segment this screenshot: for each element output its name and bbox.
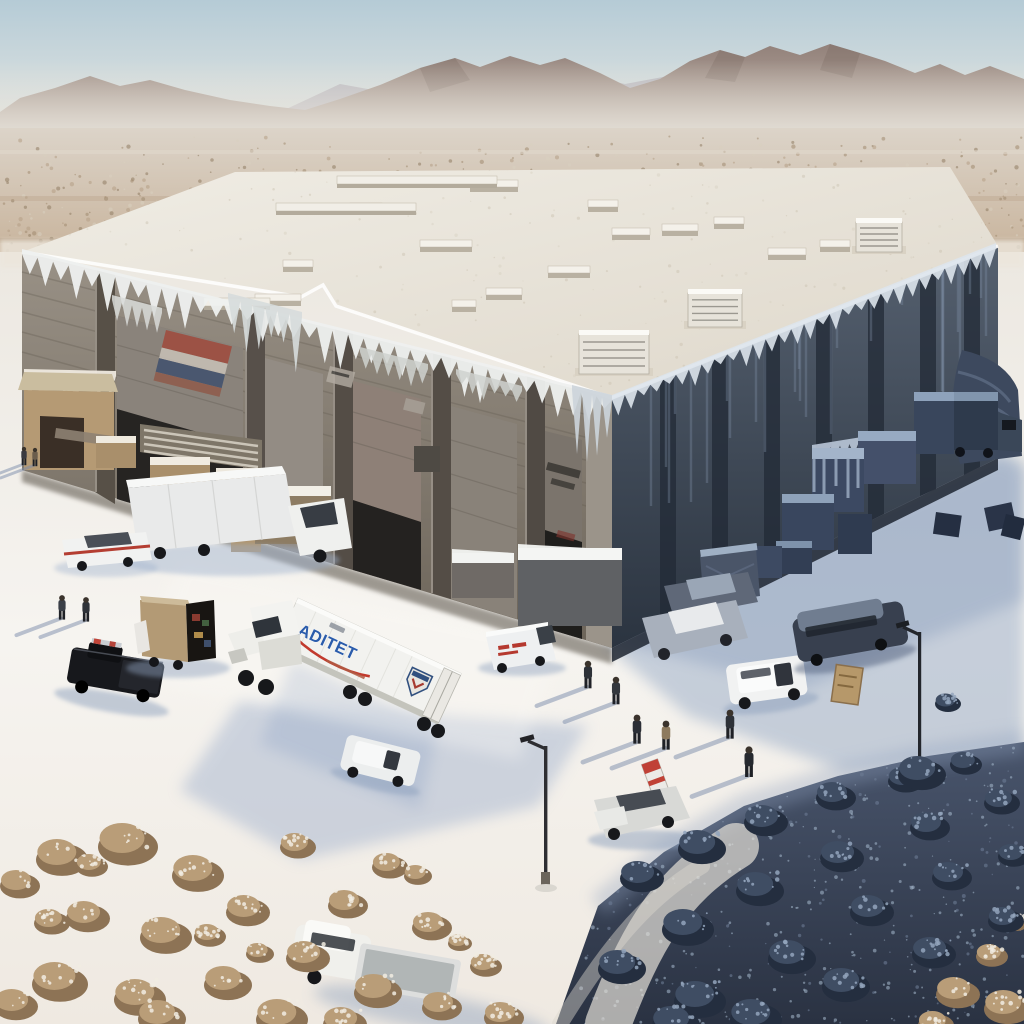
scrub-dot <box>702 165 704 167</box>
scrub-dot <box>788 163 790 165</box>
frost-dot <box>787 860 789 862</box>
roof-grain-dot <box>224 278 225 279</box>
roof-grain-dot <box>550 356 552 358</box>
scrub-dot <box>1015 145 1019 149</box>
frost-dot <box>820 938 822 940</box>
scrub-dot <box>942 159 946 163</box>
roof-grain-dot <box>805 284 808 287</box>
frost-dot <box>587 955 589 957</box>
frost-dot <box>962 894 966 898</box>
roof-grain-dot <box>981 222 982 223</box>
scrub-dot <box>759 143 762 146</box>
frost-dot <box>891 1018 893 1020</box>
roof-skylight-face <box>276 211 416 215</box>
hvac-unit <box>688 293 742 327</box>
frost-dot <box>762 858 764 860</box>
frost-dot <box>822 898 825 901</box>
hvac-unit <box>856 222 902 252</box>
person-leg <box>633 732 636 744</box>
frost-dot <box>607 927 610 930</box>
frost-dot <box>907 956 909 958</box>
frost-dot <box>971 813 973 815</box>
scrub-dot <box>239 147 241 149</box>
scrub-dot <box>147 157 149 159</box>
scrub-dot <box>757 137 759 139</box>
roof-grain-dot <box>910 256 912 258</box>
frost-dot <box>1012 826 1014 828</box>
scrub-dot <box>74 174 75 175</box>
frost-dot <box>970 945 974 949</box>
frost-dot <box>613 911 615 913</box>
scrub-dot <box>145 172 148 175</box>
frost-dot <box>853 954 856 957</box>
scrub-dot <box>1016 194 1018 196</box>
scrub-dot <box>128 204 132 208</box>
frost-dot <box>859 793 862 796</box>
frost-dot <box>820 891 824 895</box>
frost-dot <box>973 892 975 894</box>
scene-canvas: Frozen warehouse in a desert <box>0 0 1024 1024</box>
roof-grain-dot <box>498 265 501 268</box>
roof-grain-dot <box>654 298 656 300</box>
scrub-dot <box>56 186 60 190</box>
scrub-dot <box>89 212 91 214</box>
roof-grain-dot <box>772 236 774 238</box>
frost-dot <box>855 784 856 785</box>
frost-dot <box>819 981 823 985</box>
roof-grain-dot <box>705 212 707 214</box>
scrub-dot <box>188 157 190 159</box>
roof-grain-dot <box>952 219 953 220</box>
roof-vent <box>662 224 698 231</box>
frost-dot <box>797 907 799 909</box>
frosted-bush <box>984 788 1020 814</box>
scrub-dot <box>430 164 433 167</box>
scrub-dot <box>150 191 153 194</box>
scrub-dot <box>986 208 989 211</box>
frost-dot <box>725 885 728 888</box>
scrub-dot <box>990 172 993 175</box>
roof-grain-dot <box>407 215 409 217</box>
roof-vent <box>820 240 850 247</box>
roof-vent <box>283 260 313 267</box>
frost-dot <box>851 815 854 818</box>
frost-dot <box>591 925 595 929</box>
roof-grain-dot <box>606 270 608 272</box>
frost-dot <box>597 928 599 930</box>
roof-grain-dot <box>466 269 468 271</box>
frost-dot <box>957 1017 959 1019</box>
frosted-bush <box>34 908 70 935</box>
frost-dot <box>780 931 783 934</box>
roof-grain-dot <box>503 196 506 199</box>
frost-dot <box>904 847 906 849</box>
scrub-dot <box>143 154 145 156</box>
roof-grain-dot <box>288 252 291 255</box>
frost-dot <box>934 913 935 914</box>
scrub-dot <box>994 169 997 172</box>
scrub-dot <box>783 156 785 158</box>
roof-grain-dot <box>691 238 693 240</box>
frost-dot <box>913 970 916 973</box>
frost-dot <box>948 841 949 842</box>
frost-dot <box>814 859 815 860</box>
person-head <box>585 661 591 667</box>
scrub-dot <box>719 145 722 148</box>
roof-vent-face <box>820 247 850 252</box>
scrub-dot <box>1016 183 1020 187</box>
frost-dot <box>849 906 852 909</box>
scrub-dot <box>262 168 264 170</box>
roof-grain-dot <box>239 238 241 240</box>
person-body <box>82 602 89 613</box>
frost-dot <box>779 854 782 857</box>
frost-dot <box>905 935 908 938</box>
frost-dot <box>801 924 804 927</box>
scrub-dot <box>310 144 312 146</box>
roof-grain-dot <box>744 272 747 275</box>
frost-dot <box>869 856 873 860</box>
frost-dot <box>1014 841 1018 845</box>
scrub-dot <box>138 192 141 195</box>
wall-column <box>764 332 780 573</box>
frost-dot <box>814 880 816 882</box>
person-leg <box>83 612 86 622</box>
roof-grain-dot <box>901 277 903 279</box>
roof-grain-dot <box>675 356 678 359</box>
frost-dot <box>910 969 911 970</box>
scrub-dot <box>513 166 516 169</box>
frost-dot <box>915 855 919 859</box>
scrub-dot <box>264 136 268 140</box>
frost-dot <box>873 949 877 953</box>
frost-dot <box>959 931 961 933</box>
roof-grain-dot <box>662 291 664 293</box>
scrub-dot <box>327 157 331 161</box>
frost-dot <box>803 826 804 827</box>
roof-grain-dot <box>796 210 798 212</box>
roof-skylight-strip <box>276 203 416 211</box>
scrub-dot <box>43 211 46 214</box>
person-leg <box>750 764 753 777</box>
roof-grain-dot <box>309 194 311 196</box>
frost-dot <box>981 848 985 852</box>
frost-dot <box>1002 779 1006 783</box>
roof-vent-face <box>662 231 698 236</box>
frost-dot <box>808 982 811 985</box>
scrub-dot <box>47 205 51 209</box>
frost-dot <box>986 851 989 854</box>
frost-dot <box>886 986 890 990</box>
frost-dot <box>899 880 902 883</box>
frost-dot <box>791 1015 795 1019</box>
frost-dot <box>954 910 956 912</box>
roof-grain-dot <box>836 184 839 187</box>
scrub-dot <box>9 221 10 222</box>
scrub-dot <box>567 143 569 145</box>
roof-grain-dot <box>710 264 711 265</box>
frost-dot <box>1000 747 1002 749</box>
frost-dot <box>667 990 671 994</box>
frost-dot <box>943 896 945 898</box>
person-body <box>32 451 37 459</box>
frost-dot <box>992 874 993 875</box>
frost-dot <box>1006 974 1008 976</box>
frost-dot <box>984 825 986 827</box>
scrub-dot <box>283 142 285 144</box>
frosted-bush <box>286 941 330 973</box>
scrub-dot <box>109 175 112 178</box>
roof-grain-dot <box>442 197 444 199</box>
roof-grain-dot <box>426 309 428 311</box>
roof-vent-face <box>486 295 522 300</box>
frost-dot <box>803 982 805 984</box>
scrub-dot <box>46 163 49 166</box>
roof-grain-dot <box>628 379 630 381</box>
frost-dot <box>655 978 658 981</box>
scrub-dot <box>85 213 88 216</box>
scrub-dot <box>89 181 92 184</box>
scrub-dot <box>815 166 817 168</box>
frost-dot <box>808 1009 810 1011</box>
scrub-dot <box>30 217 33 220</box>
frost-dot <box>875 842 878 845</box>
roof-grain-dot <box>430 211 433 214</box>
scrub-dot <box>52 189 56 193</box>
roof-vent-face <box>768 255 806 260</box>
frost-dot <box>749 977 751 979</box>
roof-grain-dot <box>557 334 559 336</box>
roof-grain-dot <box>529 222 531 224</box>
scrub-dot <box>882 137 886 141</box>
frost-dot <box>823 1017 826 1020</box>
roof-grain-dot <box>802 175 805 178</box>
open-cargo-bay <box>186 600 216 662</box>
frost-dot <box>965 778 967 780</box>
frost-dot <box>823 967 826 970</box>
roof-grain-dot <box>913 256 914 257</box>
person-head <box>634 715 641 722</box>
frost-dot <box>848 838 850 840</box>
horizon-haze <box>0 60 1024 138</box>
frost-dot <box>656 983 657 984</box>
frost-dot <box>782 810 784 812</box>
scrub-dot <box>461 161 463 163</box>
frost-dot <box>738 975 742 979</box>
frost-dot <box>946 803 949 806</box>
scrub-dot <box>952 147 955 150</box>
roof-vent <box>714 217 744 224</box>
frost-dot <box>725 1011 727 1013</box>
crate <box>838 514 872 554</box>
scrub-dot <box>46 203 48 205</box>
scrub-dot <box>546 157 550 161</box>
frost-dot <box>932 855 933 856</box>
frost-dot <box>862 879 866 883</box>
person-leg <box>667 738 670 750</box>
scrub-dot <box>18 139 22 143</box>
frost-dot <box>874 778 877 781</box>
person-head <box>33 448 37 452</box>
roof-grain-dot <box>475 319 477 321</box>
scrub-dot <box>699 159 703 163</box>
scrub-dot <box>332 165 336 169</box>
roof-grain-dot <box>179 230 180 231</box>
frost-dot <box>995 850 997 852</box>
scrub-dot <box>9 235 10 236</box>
frost-dot <box>989 772 991 774</box>
frost-dot <box>969 942 972 945</box>
frost-dot <box>980 928 983 931</box>
scrub-dot <box>1014 165 1018 169</box>
frost-dot <box>825 889 828 892</box>
frost-dot <box>910 952 912 954</box>
frost-dot <box>869 847 872 850</box>
scrub-dot <box>1020 137 1022 139</box>
frost-dot <box>860 958 861 959</box>
frost-dot <box>807 900 811 904</box>
frost-dot <box>791 906 793 908</box>
scrub-dot <box>568 163 571 166</box>
scrub-dot <box>29 213 31 215</box>
scrub-dot <box>555 155 559 159</box>
frost-dot <box>987 786 988 787</box>
frost-dot <box>903 822 906 825</box>
frost-dot <box>851 813 853 815</box>
scrub-dot <box>966 161 969 164</box>
scrub-dot <box>988 222 990 224</box>
frost-dot <box>825 881 827 883</box>
scrub-dot <box>995 235 997 237</box>
frost-dot <box>950 859 952 861</box>
scrub-dot <box>530 143 533 146</box>
frosted-bush <box>678 830 726 864</box>
roof-grain-dot <box>454 234 457 237</box>
scrub-dot <box>807 164 809 166</box>
frost-dot <box>875 857 879 861</box>
person-leg <box>612 693 615 704</box>
frost-dot <box>850 933 852 935</box>
frost-dot <box>728 924 730 926</box>
frost-dot <box>956 935 959 938</box>
frost-dot <box>841 878 843 880</box>
frost-dot <box>781 976 783 978</box>
scrub-dot <box>905 163 909 167</box>
roof-vent <box>548 266 590 273</box>
roof-grain-dot <box>481 296 483 298</box>
roof-vent-face <box>283 267 313 272</box>
person-leg <box>59 610 62 620</box>
frost-dot <box>769 836 772 839</box>
roof-grain-dot <box>680 343 683 346</box>
scrub-dot <box>463 168 465 170</box>
person-leg <box>33 459 35 467</box>
frost-dot <box>808 855 811 858</box>
roof-grain-dot <box>86 228 88 230</box>
scrub-dot <box>146 185 150 189</box>
frost-dot <box>1012 747 1015 750</box>
frost-dot <box>917 802 919 804</box>
scrub-dot <box>388 158 390 160</box>
frost-dot <box>585 956 588 959</box>
scrub-dot <box>1016 234 1018 236</box>
frost-dot <box>814 869 815 870</box>
scrub-dot <box>50 166 54 170</box>
scrub-dot <box>983 190 985 192</box>
scrub-dot <box>123 188 125 190</box>
scrub-dot <box>123 161 125 163</box>
roof-grain-dot <box>125 243 128 246</box>
scrub-dot <box>1008 214 1010 216</box>
frost-dot <box>1016 886 1019 889</box>
frost-dot <box>918 889 920 891</box>
roof-grain-dot <box>885 270 887 272</box>
roof-skylight-strip <box>337 176 497 184</box>
roof-grain-dot <box>301 196 303 198</box>
roof-grain-dot <box>379 266 382 269</box>
frost-dot <box>639 1021 642 1024</box>
roof-grain-dot <box>401 288 403 290</box>
frost-dot <box>722 821 723 822</box>
frost-dot <box>914 1015 916 1017</box>
frost-dot <box>893 1019 895 1021</box>
person-head <box>727 710 734 717</box>
roof-vent <box>768 248 806 255</box>
frost-dot <box>837 835 841 839</box>
frost-dot <box>887 982 890 985</box>
roof-grain-dot <box>417 323 420 326</box>
frost-dot <box>976 800 978 802</box>
frost-dot <box>872 991 875 994</box>
frost-dot <box>672 983 674 985</box>
scrub-dot <box>257 148 259 150</box>
frost-dot <box>884 961 888 965</box>
roof-grain-dot <box>735 274 738 277</box>
roof-grain-dot <box>909 198 910 199</box>
frost-dot <box>989 837 991 839</box>
roof-grain-dot <box>842 287 845 290</box>
roof-grain-dot <box>183 228 184 229</box>
frost-dot <box>866 797 868 799</box>
frost-dot <box>720 911 722 913</box>
scrub-dot <box>449 159 453 163</box>
person-head <box>745 746 752 753</box>
person-leg <box>662 738 665 750</box>
frost-dot <box>985 990 988 993</box>
roof-grain-dot <box>676 270 679 273</box>
roof-grain-dot <box>272 188 275 191</box>
frost-dot <box>929 969 932 972</box>
frost-dot <box>804 974 806 976</box>
frost-dot <box>766 922 770 926</box>
frost-dot <box>810 908 812 910</box>
frost-dot <box>774 933 778 937</box>
scrub-dot <box>1011 226 1013 228</box>
frost-dot <box>661 865 665 869</box>
frost-dot <box>814 827 817 830</box>
frost-dot <box>866 1020 867 1021</box>
frost-dot <box>963 899 965 901</box>
frost-dot <box>915 985 919 989</box>
frost-dot <box>859 886 862 889</box>
frost-dot <box>642 894 643 895</box>
roof-grain-dot <box>852 228 855 231</box>
person-head <box>663 721 670 728</box>
roof-grain-dot <box>905 213 907 215</box>
scrub-dot <box>130 179 133 182</box>
person-leg <box>584 677 587 688</box>
roof-grain-dot <box>639 286 641 288</box>
